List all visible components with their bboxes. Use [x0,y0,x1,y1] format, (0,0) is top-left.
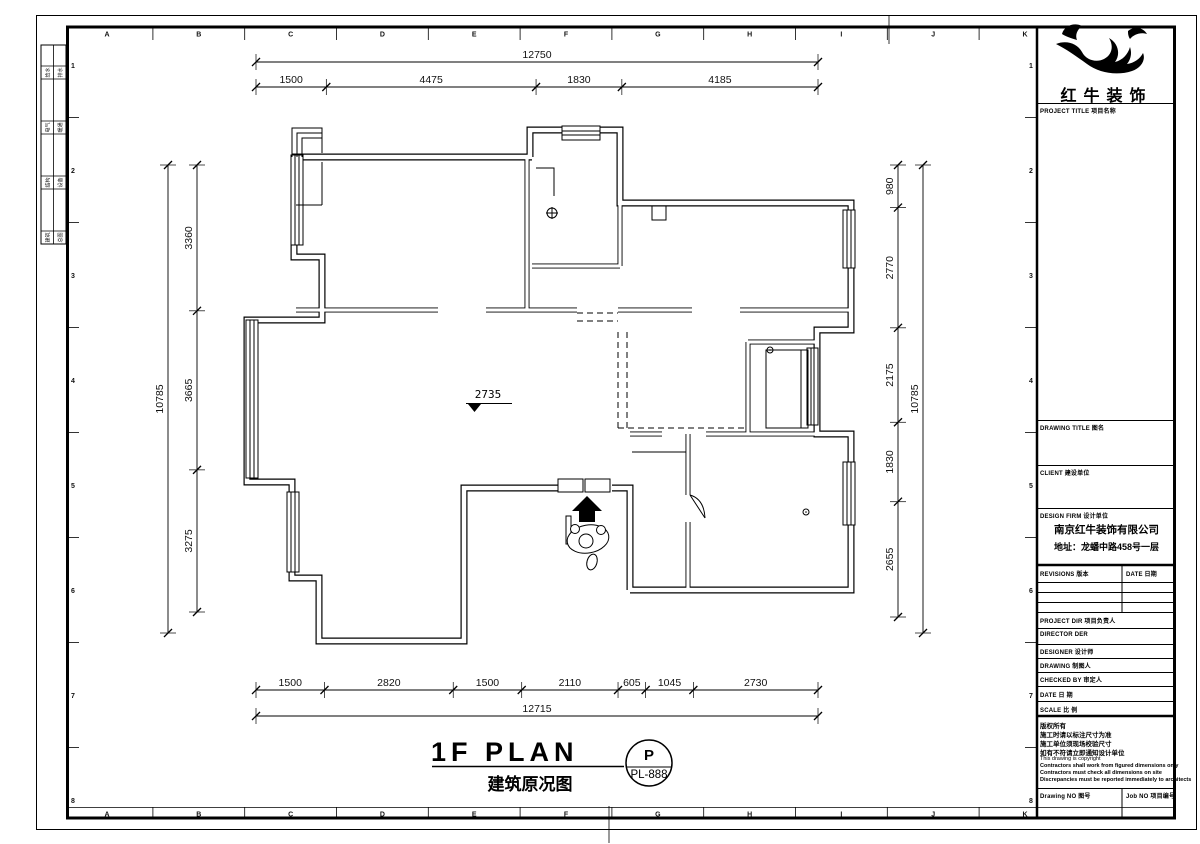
svg-text:4475: 4475 [420,74,444,86]
svg-text:4185: 4185 [708,74,732,86]
copyright-line: Contractors must check all dimensions on… [1040,770,1162,776]
svg-text:E: E [472,32,477,39]
company-logo-text: 红牛装饰 [1037,82,1176,106]
entry-arrow-icon [572,496,602,522]
dim-chain: 12715 [252,703,822,724]
designer-label: DESIGNER 设计师 [1040,647,1093,656]
svg-text:2730: 2730 [744,677,768,689]
svg-text:K: K [1022,812,1027,819]
svg-text:8: 8 [1029,798,1033,805]
svg-text:7: 7 [1029,693,1033,700]
scale-label: SCALE 比 例 [1040,705,1077,714]
copyright-line: Contractors shall work from figured dime… [1040,763,1178,769]
director-label: DIRECTOR DER [1040,632,1088,638]
svg-text:2770: 2770 [884,256,896,280]
svg-text:2: 2 [71,168,75,175]
window-left-lower [287,492,299,572]
level-marker-value: 2735 [460,388,516,401]
windows [246,126,855,572]
svg-text:3: 3 [1029,273,1033,280]
entry-person-figure [565,516,611,571]
svg-text:结构: 结构 [44,177,51,187]
svg-text:2820: 2820 [377,677,401,689]
svg-text:设备: 设备 [57,177,64,187]
svg-text:5: 5 [71,483,75,490]
job-no-label: Job NO 项目编号 [1126,791,1175,800]
svg-text:12750: 12750 [522,49,551,61]
signoff-table: 给水排水电气暖通结构设备建筑总图 [41,45,66,244]
drawing-label: DRAWING 制图人 [1040,661,1091,670]
svg-text:1500: 1500 [279,74,303,86]
walls-white-core [247,130,851,641]
svg-text:建筑: 建筑 [44,232,51,242]
svg-text:10785: 10785 [909,384,921,413]
svg-text:J: J [931,812,935,819]
project-dir-label: PROJECT DIR 项目负责人 [1040,616,1115,625]
svg-text:B: B [196,32,201,39]
plan-symbols [432,207,809,786]
window-bedroom3-right [843,462,855,525]
dim-chain: 1500447518304185 [252,74,822,95]
project-title-label: PROJECT TITLE 项目名称 [1040,106,1116,115]
svg-text:1830: 1830 [884,450,896,474]
svg-text:D: D [380,32,385,39]
cad-sheet-page: { "sheet": { "grid_letters": ["A","B","C… [0,0,1200,844]
svg-text:暖通: 暖通 [57,122,64,132]
svg-text:2: 2 [1029,168,1033,175]
svg-text:D: D [380,812,385,819]
copyright-line: This drawing is copyright [1040,756,1101,762]
svg-text:980: 980 [884,177,896,195]
date-label: DATE 日 期 [1040,690,1073,699]
svg-text:6: 6 [1029,588,1033,595]
svg-text:G: G [655,812,661,819]
floor-plan-canvas: 1275015004475183041851500282015002110605… [0,0,1200,844]
svg-text:电气: 电气 [44,122,51,132]
svg-text:12715: 12715 [522,703,551,715]
stamp-letter: P [626,747,672,764]
dim-chain: 10785 [154,161,176,637]
svg-text:8: 8 [71,798,75,805]
svg-text:1830: 1830 [567,74,591,86]
date-column-label: DATE 日期 [1126,569,1157,578]
svg-text:C: C [288,812,293,819]
window-tower-top [562,126,600,140]
svg-text:1500: 1500 [476,677,500,689]
svg-text:605: 605 [623,677,641,689]
svg-text:A: A [104,32,109,39]
ceiling-symbol [546,207,558,219]
svg-text:给水: 给水 [44,67,51,77]
revisions-label: REVISIONS 版本 [1040,569,1089,578]
svg-text:4: 4 [1029,378,1033,385]
dim-chain: 10785 [909,161,931,637]
level-marker-symbol [466,404,512,413]
checked-by-label: CHECKED BY 审定人 [1040,675,1102,684]
company-address: 地址：龙蟠中路458号一层 [1037,540,1176,553]
svg-text:C: C [288,32,293,39]
plan-subtitle: 建筑原况图 [430,770,630,795]
svg-text:3: 3 [71,273,75,280]
svg-text:2175: 2175 [884,363,896,387]
plan-title: 1F PLAN [431,737,579,768]
design-firm-label: DESIGN FIRM 设计单位 [1040,511,1108,520]
dim-chain: 336036653275 [183,161,205,616]
dim-chain: 150028201500211060510452730 [252,677,822,698]
svg-text:排水: 排水 [57,67,64,77]
svg-text:1: 1 [1029,63,1033,70]
company-logo-icon [1056,24,1147,73]
window-left-upper [291,155,303,245]
drawing-title-label: DRAWING TITLE 图名 [1040,423,1104,432]
corner-column-detail [292,128,322,157]
company-name: 南京红牛装饰有限公司 [1037,522,1176,537]
svg-text:2655: 2655 [884,548,896,572]
svg-text:1500: 1500 [279,677,303,689]
client-label: CLIENT 建设单位 [1040,468,1090,477]
svg-text:总图: 总图 [57,232,64,242]
svg-text:1045: 1045 [658,677,682,689]
walls-outer-black [247,130,851,641]
svg-text:H: H [747,812,752,819]
svg-text:G: G [655,32,661,39]
entry-threshold-1 [558,479,583,492]
drawing-no-label: Drawing NO 图号 [1040,791,1091,800]
dim-chain: 12750 [252,49,822,70]
svg-text:B: B [196,812,201,819]
svg-text:7: 7 [71,693,75,700]
svg-text:I: I [840,812,842,819]
svg-text:J: J [931,32,935,39]
svg-text:F: F [564,32,569,39]
svg-text:1: 1 [71,63,75,70]
stamp-number: PL-888 [623,769,675,781]
svg-text:2110: 2110 [559,677,582,689]
svg-text:3275: 3275 [183,529,195,553]
copyright-line: Discrepancies must be reported immediate… [1040,777,1191,783]
svg-text:F: F [564,812,569,819]
window-right-upper [843,210,855,268]
svg-text:K: K [1022,32,1027,39]
dim-chain: 9802770217518302655 [884,161,906,621]
entry-threshold-2 [585,479,610,492]
svg-text:4: 4 [71,378,75,385]
svg-text:3360: 3360 [183,226,195,250]
svg-text:6: 6 [71,588,75,595]
svg-text:3665: 3665 [183,379,195,403]
svg-text:I: I [840,32,842,39]
window-bath-right [807,348,818,425]
svg-text:5: 5 [1029,483,1033,490]
svg-text:A: A [104,812,109,819]
window-bay-left [246,320,258,478]
grid-reference-marks: AABBCCDDEEFFGGHHIIJJKK1122334455667788 [67,28,1037,819]
svg-text:10785: 10785 [154,384,166,413]
svg-text:E: E [472,812,477,819]
svg-text:H: H [747,32,752,39]
